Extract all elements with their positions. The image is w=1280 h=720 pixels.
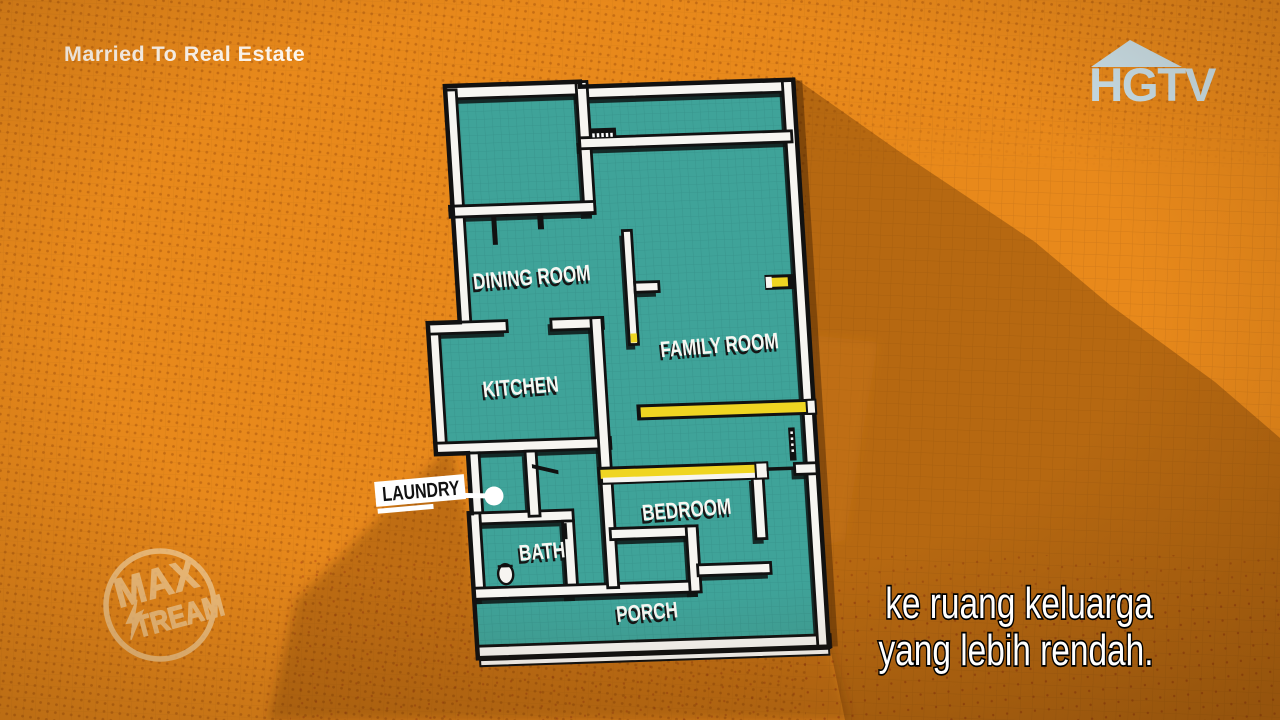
svg-text:ke ruang keluarga: ke ruang keluarga xyxy=(885,580,1153,628)
svg-text:yang lebih rendah.: yang lebih rendah. xyxy=(878,627,1153,675)
